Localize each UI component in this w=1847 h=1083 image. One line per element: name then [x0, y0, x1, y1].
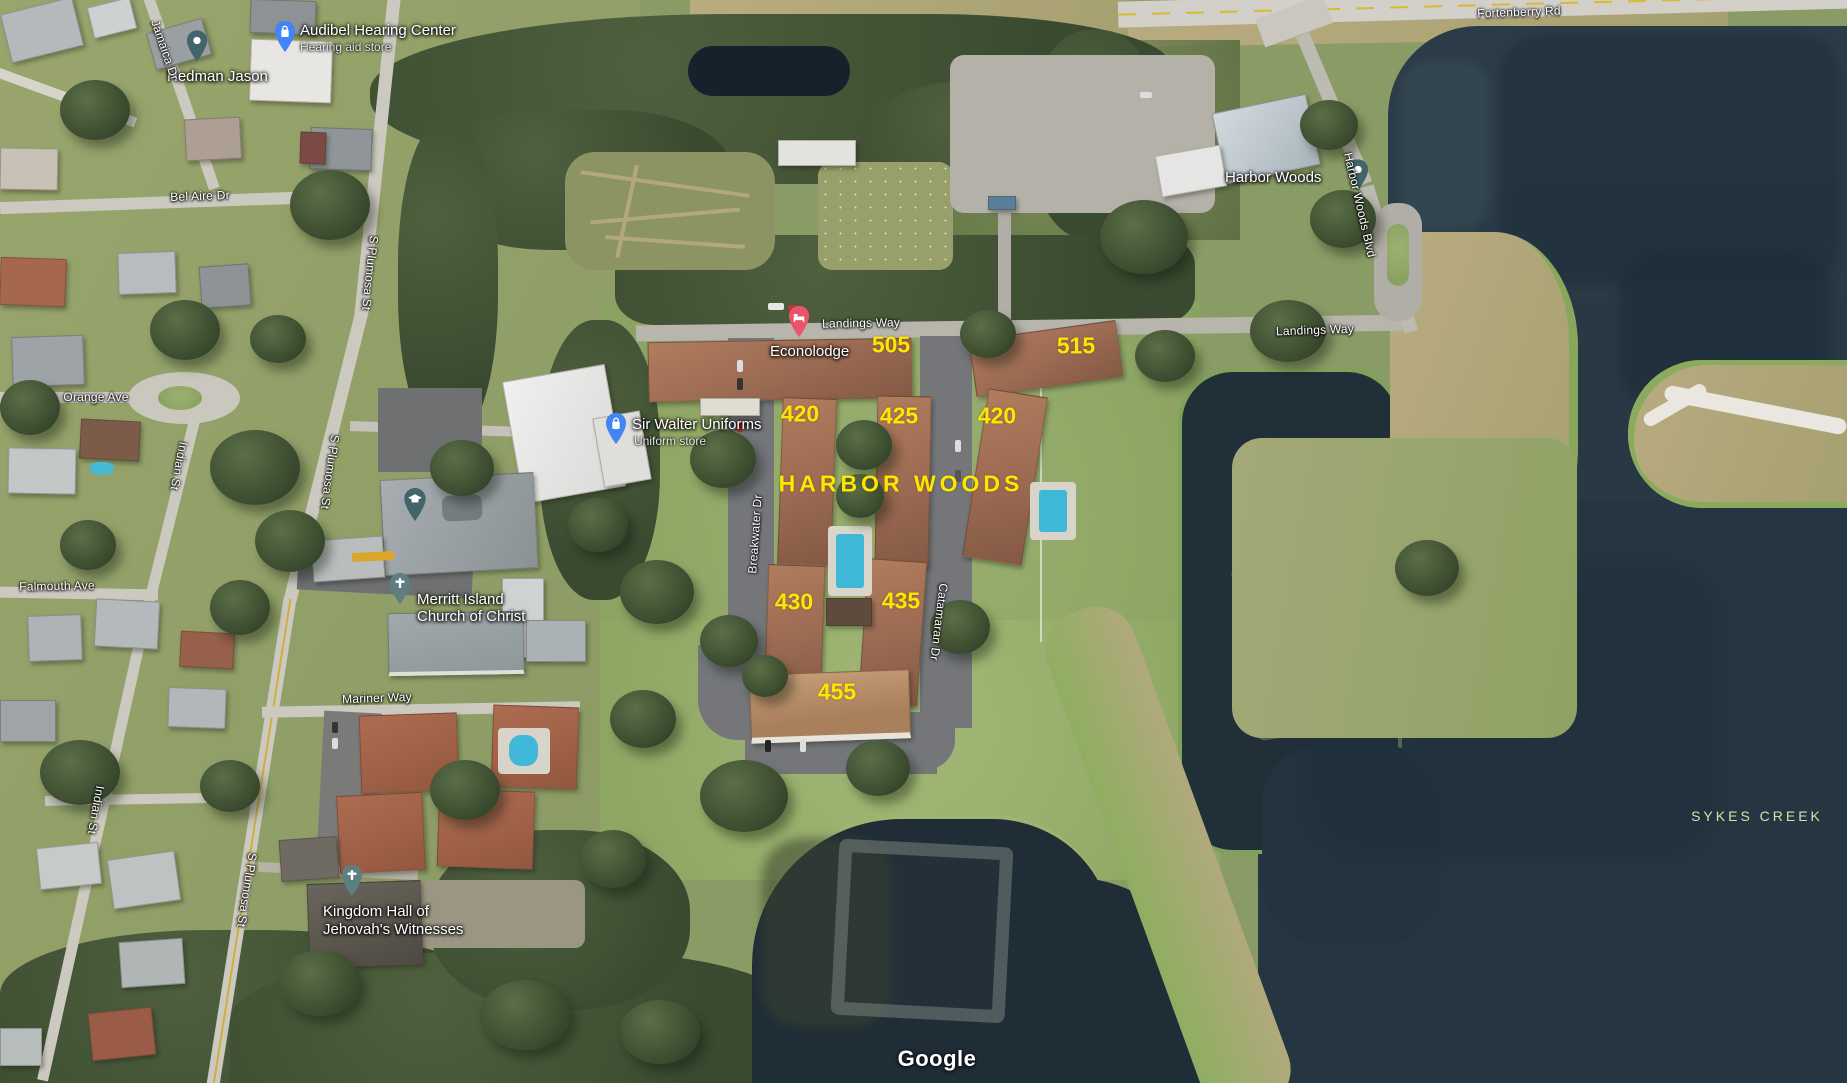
econolodge-lodging-pin[interactable] — [788, 305, 810, 338]
road-label-s-plumosa-st-2: S Plumosa St — [318, 434, 342, 510]
satellite-map[interactable]: Audibel Hearing Center Hearing aid store… — [0, 0, 1847, 1083]
road-label-landings-way-west: Landings Way — [822, 315, 900, 330]
unit-label-455: 455 — [818, 679, 856, 706]
hedman-title[interactable]: Hedman Jason — [167, 68, 268, 85]
road-label-indian-st-1: Indian St — [167, 441, 190, 492]
unit-label-420-east: 420 — [978, 403, 1016, 430]
church-of-christ-line1[interactable]: Merritt Island — [417, 591, 504, 608]
road-label-catamaran-dr: Catamaran Dr — [927, 583, 950, 662]
unit-label-430: 430 — [775, 589, 813, 616]
road-label-fortenberry-rd: Fortenberry Rd — [1477, 4, 1561, 21]
unit-label-425: 425 — [880, 403, 918, 430]
road-label-orange-ave: Orange Ave — [63, 390, 128, 404]
sir-walter-subtitle: Uniform store — [634, 434, 706, 448]
audibel-title[interactable]: Audibel Hearing Center — [300, 22, 456, 39]
unit-label-515: 515 — [1057, 333, 1095, 360]
road-label-indian-st-2: Indian St — [85, 785, 107, 836]
road-label-s-plumosa-st-1: S Plumosa St — [359, 235, 381, 311]
google-watermark: Google — [898, 1046, 977, 1072]
water-label-sykes-creek: SYKES CREEK — [1691, 808, 1823, 824]
church-of-christ-line2[interactable]: Church of Christ — [417, 608, 525, 625]
road-label-s-plumosa-st-3: S Plumosa St — [234, 852, 260, 928]
road-label-breakwater-dr: Breakwater Dr — [745, 494, 764, 574]
road-label-jamaica-dr: Jamaica Dr — [148, 18, 182, 82]
pin-body — [390, 573, 410, 604]
unit-label-435: 435 — [882, 588, 920, 615]
hedman-poi-pin[interactable] — [186, 29, 208, 62]
kingdom-hall-line1[interactable]: Kingdom Hall of — [323, 903, 429, 920]
church-of-christ-pin[interactable] — [389, 572, 411, 605]
kingdom-hall-line2[interactable]: Jehovah's Witnesses — [323, 921, 463, 938]
pin-body — [404, 488, 425, 521]
kingdom-hall-pin[interactable] — [341, 864, 363, 897]
education-pin[interactable] — [403, 487, 425, 520]
audibel-subtitle: Hearing aid store — [300, 40, 391, 54]
econolodge-title[interactable]: Econolodge — [770, 343, 849, 360]
label-layer: Audibel Hearing Center Hearing aid store… — [0, 0, 1847, 1083]
sir-walter-title[interactable]: Sir Walter Uniforms — [632, 416, 761, 433]
pin-body — [342, 865, 362, 896]
road-label-landings-way-east: Landings Way — [1276, 322, 1354, 339]
road-label-mariner-way: Mariner Way — [342, 690, 412, 706]
pin-body — [789, 306, 809, 337]
unit-label-505: 505 — [872, 332, 910, 359]
audibel-store-pin[interactable] — [274, 20, 296, 53]
unit-label-420-west: 420 — [781, 401, 819, 428]
sir-walter-store-pin[interactable] — [605, 412, 627, 445]
harbor-woods-poi-title[interactable]: Harbor Woods — [1225, 169, 1321, 186]
pin-body — [187, 30, 207, 61]
community-label-harbor-woods: HARBOR WOODS — [779, 471, 1024, 498]
road-label-falmouth-ave: Falmouth Ave — [19, 578, 95, 593]
road-label-bel-aire-dr: Bel Aire Dr — [170, 188, 230, 204]
